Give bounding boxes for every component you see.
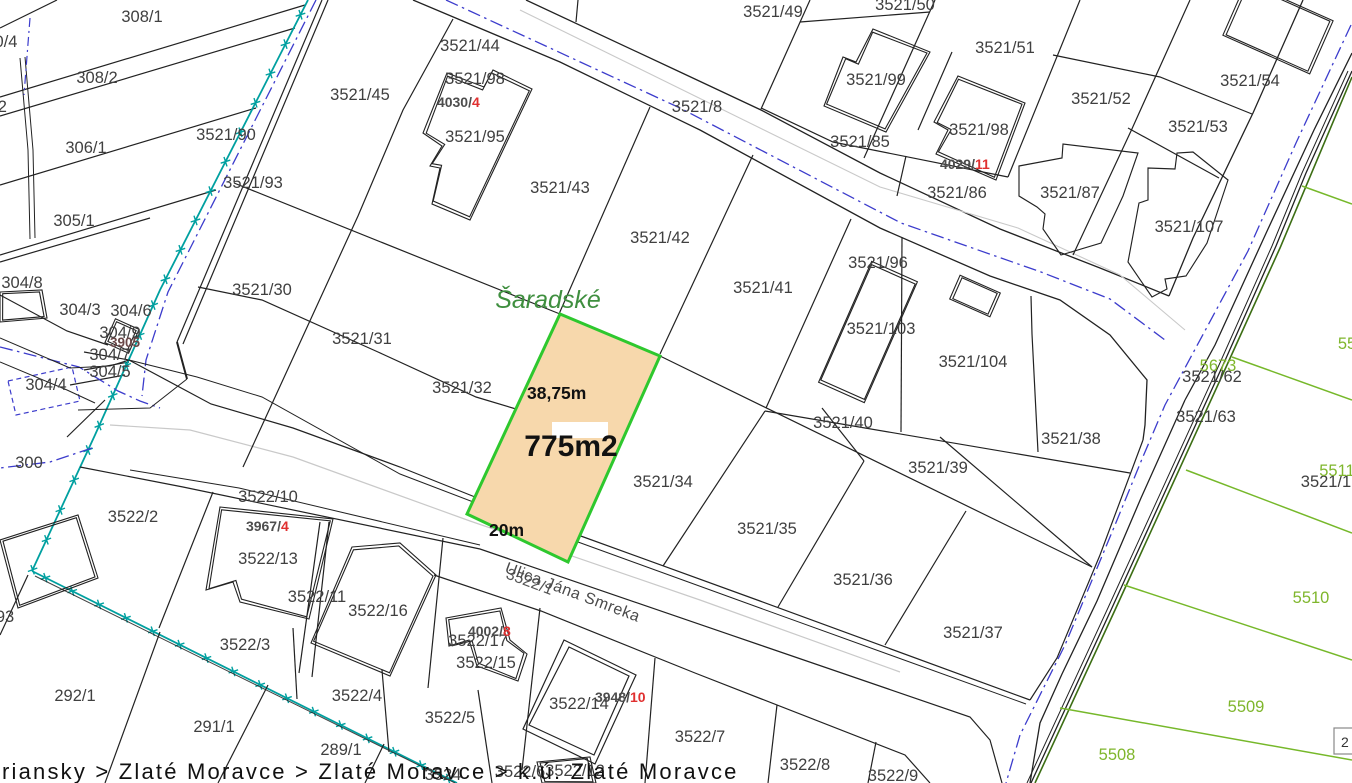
svg-text:3522/10: 3522/10 — [238, 488, 298, 506]
svg-text:3521/40: 3521/40 — [813, 414, 873, 432]
svg-text:3521/31: 3521/31 — [332, 330, 392, 348]
svg-text:38,75m: 38,75m — [527, 383, 586, 403]
svg-text:55: 55 — [1338, 335, 1352, 353]
svg-text:10: 10 — [630, 689, 646, 705]
svg-text:300: 300 — [15, 454, 43, 472]
svg-text:3521/104: 3521/104 — [939, 353, 1008, 371]
svg-text:3521/52: 3521/52 — [1071, 90, 1131, 108]
svg-text:2: 2 — [1341, 734, 1349, 750]
svg-text:3521/96: 3521/96 — [848, 254, 908, 272]
svg-text:3522/16: 3522/16 — [348, 602, 408, 620]
svg-text:3521/87: 3521/87 — [1040, 184, 1100, 202]
svg-text:3522/15: 3522/15 — [456, 654, 516, 672]
svg-text:8: 8 — [503, 623, 511, 639]
svg-text:292/1: 292/1 — [54, 687, 95, 705]
svg-text:riansky > Zlaté Moravce > Zlat: riansky > Zlaté Moravce > Zlaté Moravce … — [2, 759, 739, 783]
svg-text:0/4: 0/4 — [0, 33, 17, 51]
svg-text:3948/: 3948/ — [595, 689, 630, 705]
svg-text:3521/43: 3521/43 — [530, 179, 590, 197]
svg-text:289/1: 289/1 — [320, 741, 361, 759]
svg-text:3521/36: 3521/36 — [833, 571, 893, 589]
svg-text:Šaradské: Šaradské — [495, 285, 601, 314]
svg-text:3905: 3905 — [110, 335, 141, 350]
svg-text:3522/11: 3522/11 — [288, 588, 346, 606]
svg-text:3522/5: 3522/5 — [425, 709, 475, 727]
svg-text:3521/41: 3521/41 — [733, 279, 793, 297]
svg-text:3521/30: 3521/30 — [232, 281, 292, 299]
svg-text:3521/53: 3521/53 — [1168, 118, 1228, 136]
svg-text:5510: 5510 — [1293, 589, 1330, 607]
svg-text:4: 4 — [281, 518, 289, 534]
svg-text:3521/99: 3521/99 — [846, 71, 906, 89]
svg-text:3521/93: 3521/93 — [223, 174, 283, 192]
svg-text:3521/98: 3521/98 — [445, 70, 505, 88]
svg-text:306/1: 306/1 — [65, 139, 106, 157]
svg-text:775m2: 775m2 — [524, 430, 617, 463]
svg-text:3521/90: 3521/90 — [196, 126, 256, 144]
svg-text:3521/38: 3521/38 — [1041, 430, 1101, 448]
svg-text:3522/3: 3522/3 — [220, 636, 270, 654]
svg-text:3521/35: 3521/35 — [737, 520, 797, 538]
svg-text:304/4: 304/4 — [25, 376, 66, 394]
svg-text:4: 4 — [472, 94, 480, 110]
svg-text:308/1: 308/1 — [121, 8, 162, 26]
svg-text:3521/34: 3521/34 — [633, 473, 693, 491]
svg-text:3521/103: 3521/103 — [847, 320, 916, 338]
svg-text:3522/9: 3522/9 — [868, 767, 918, 783]
svg-text:3522/4: 3522/4 — [332, 687, 382, 705]
svg-text:3521/85: 3521/85 — [830, 133, 890, 151]
svg-text:3521/37: 3521/37 — [943, 624, 1003, 642]
svg-text:3521/95: 3521/95 — [445, 128, 505, 146]
svg-text:93: 93 — [0, 608, 14, 626]
svg-text:3521/50: 3521/50 — [875, 0, 935, 14]
svg-text:4029/: 4029/ — [940, 156, 975, 172]
svg-text:5509: 5509 — [1228, 698, 1265, 716]
svg-text:3521/98: 3521/98 — [949, 121, 1009, 139]
svg-text:3522/2: 3522/2 — [108, 508, 158, 526]
svg-text:11: 11 — [975, 156, 990, 172]
svg-text:304/8: 304/8 — [1, 274, 42, 292]
svg-text:308/2: 308/2 — [76, 69, 117, 87]
svg-text:4030/: 4030/ — [437, 94, 472, 110]
svg-text:305/1: 305/1 — [53, 212, 94, 230]
svg-text:304/6: 304/6 — [110, 302, 151, 320]
svg-text:/2: /2 — [0, 98, 7, 116]
svg-text:4002/: 4002/ — [468, 623, 503, 639]
svg-text:3521/44: 3521/44 — [440, 37, 500, 55]
svg-text:3521/63: 3521/63 — [1176, 408, 1236, 426]
svg-text:3521/86: 3521/86 — [927, 184, 987, 202]
svg-text:3521/42: 3521/42 — [630, 229, 690, 247]
svg-text:5673: 5673 — [1200, 357, 1237, 375]
svg-text:304/5: 304/5 — [89, 363, 130, 381]
svg-text:5511: 5511 — [1319, 462, 1352, 480]
svg-text:3521/49: 3521/49 — [743, 3, 803, 21]
svg-text:3521/32: 3521/32 — [432, 379, 492, 397]
svg-text:3522/13: 3522/13 — [238, 550, 298, 568]
svg-text:3521/54: 3521/54 — [1220, 72, 1280, 90]
svg-text:3522/7: 3522/7 — [675, 728, 725, 746]
svg-text:291/1: 291/1 — [193, 718, 234, 736]
svg-text:3521/45: 3521/45 — [330, 86, 390, 104]
svg-text:3521/8: 3521/8 — [672, 98, 722, 116]
svg-text:304/3: 304/3 — [59, 301, 100, 319]
svg-text:5508: 5508 — [1099, 746, 1136, 764]
svg-text:3521/51: 3521/51 — [975, 39, 1035, 57]
svg-text:20m: 20m — [489, 520, 524, 540]
svg-text:3967/: 3967/ — [246, 518, 281, 534]
svg-text:3521/39: 3521/39 — [908, 459, 968, 477]
svg-text:3522/8: 3522/8 — [780, 756, 830, 774]
svg-text:3521/107: 3521/107 — [1155, 218, 1224, 236]
